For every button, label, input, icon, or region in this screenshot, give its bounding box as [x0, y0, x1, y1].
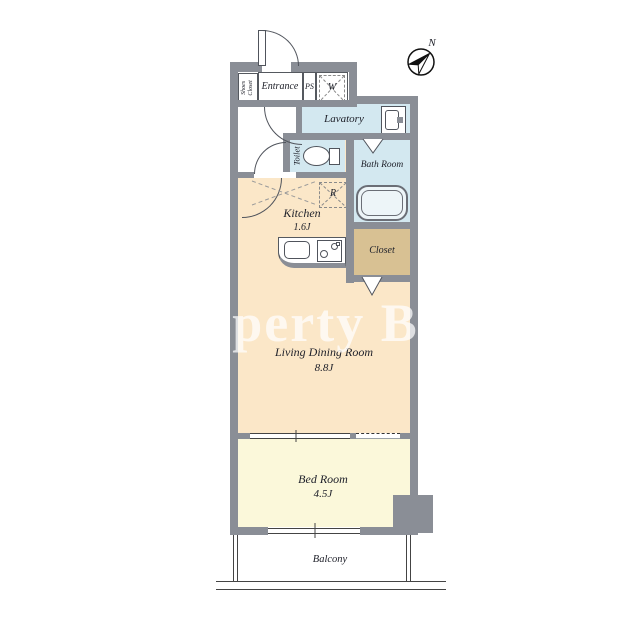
refrigerator-dashed-box [319, 182, 347, 208]
watermark-text: perty Ba [130, 292, 550, 352]
wash-basin-tap [397, 117, 403, 123]
wall-top-left-b [291, 62, 357, 72]
wall-closet-bottom [346, 275, 418, 282]
bed-room-floor [238, 439, 410, 527]
wall-partition-stub-left [238, 433, 250, 439]
balcony-rail-left [233, 535, 238, 582]
washer-dashed-box [319, 75, 345, 102]
compass-icon [408, 49, 434, 75]
kitchen-sink [284, 241, 310, 259]
folding-partition [356, 433, 400, 439]
wall-under-entrance [238, 100, 349, 107]
balcony-window [268, 528, 360, 534]
balcony-rail-right [406, 535, 411, 582]
stove-burner-left [320, 250, 328, 258]
entrance-door-arc [262, 30, 299, 66]
floor-plan: Shoes Closet Entrance PS W Lavatory Toil… [0, 0, 640, 640]
stove-corner-square [336, 242, 340, 246]
balcony-label: Balcony [270, 554, 390, 567]
balcony-edge-line-outer [216, 581, 446, 582]
shoes-closet-box [238, 73, 258, 102]
compass-north-label: N [424, 36, 440, 50]
wall-bed-bottom-left [230, 527, 268, 535]
wall-partition-stub-right [400, 433, 418, 439]
toilet-tank [329, 148, 340, 165]
wall-center-vertical [346, 133, 354, 283]
bathtub [356, 185, 408, 221]
pipe-space-box [303, 72, 316, 102]
balcony-edge-line-inner [216, 589, 446, 590]
closet-floor [354, 229, 410, 275]
sliding-door-partition [250, 433, 350, 439]
pillar [393, 495, 433, 533]
toilet-bowl [303, 146, 330, 166]
wall-top-right [355, 96, 418, 104]
wall-bath-bottom [354, 222, 418, 229]
entrance-box [258, 72, 303, 102]
